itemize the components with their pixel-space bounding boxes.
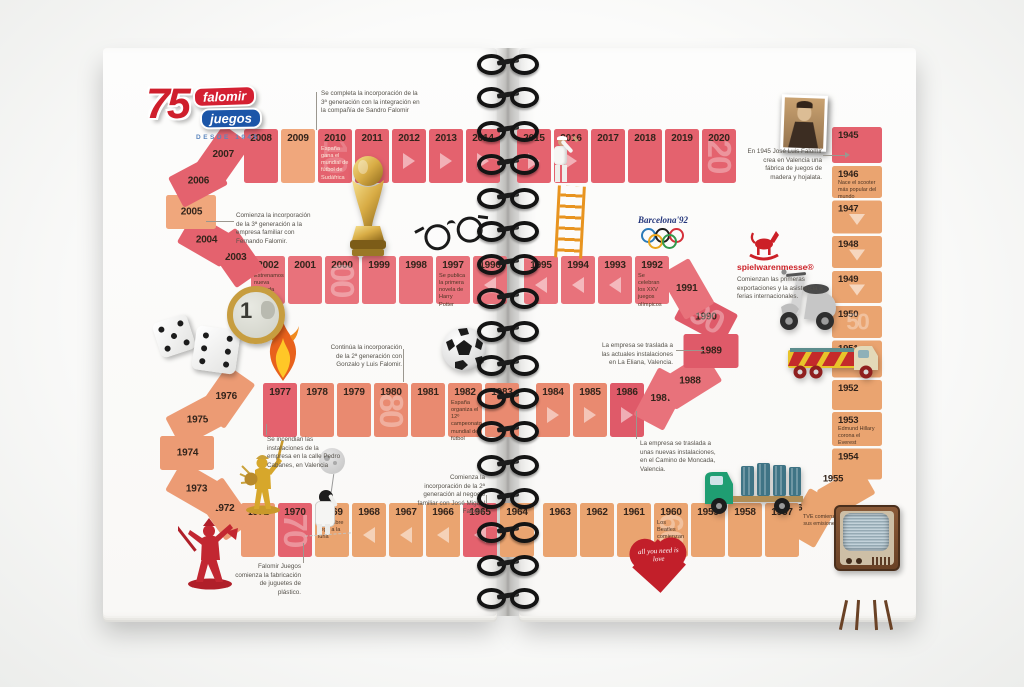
spiral-ring — [474, 419, 542, 437]
annotation-leader-line — [676, 350, 704, 351]
portrait-sepia — [783, 97, 825, 148]
ladder-icon — [554, 185, 586, 258]
decade-watermark: 00 — [323, 264, 361, 297]
year-label: 1993 — [598, 260, 632, 271]
heart-lettering: all you need is love — [633, 547, 684, 565]
year-cell-1998: 1998 — [399, 256, 433, 304]
year-label: 1946 — [832, 169, 882, 180]
direction-arrow-icon — [609, 277, 621, 293]
logo-brand: falomir — [193, 85, 257, 108]
cell-event-note: Edmund Hillary corona el Everest — [838, 426, 879, 447]
year-label: 1962 — [580, 507, 614, 518]
annotation-a2009: Se completa la incorporación de la 3ª ge… — [321, 90, 421, 116]
painter-leg — [562, 165, 567, 182]
annotation-leader-line — [266, 424, 267, 435]
cell-event-note: Nace el scooter más popular del mundo — [838, 180, 879, 201]
annotation-leader-arrowhead — [845, 152, 850, 158]
olympic-rings-icon — [641, 228, 687, 250]
direction-arrow-icon — [437, 527, 449, 543]
year-label: 1985 — [573, 387, 607, 398]
spiral-ring — [474, 219, 542, 237]
beatles-love-heart-icon: all you need is love — [629, 535, 690, 594]
year-label: 1961 — [617, 507, 651, 518]
direction-arrow-icon — [403, 153, 415, 169]
direction-arrow-icon — [572, 277, 584, 293]
spiral-binding — [474, 52, 542, 614]
year-label: 2019 — [665, 133, 699, 144]
spiral-ring — [474, 353, 542, 371]
olympic-ring — [662, 234, 677, 249]
year-label: 1997 — [436, 260, 470, 271]
year-cell-1985: 1985 — [573, 383, 607, 437]
year-cell-1980: 801980 — [374, 383, 408, 437]
logo-tagline: DESDE 1945 — [196, 134, 260, 141]
year-label: 2013 — [429, 133, 463, 144]
portrait-hair — [797, 101, 813, 109]
annotation-a1970: Falomir Juegos comienza la fabricación d… — [235, 563, 301, 597]
year-label: 1981 — [411, 387, 445, 398]
year-label: 2012 — [392, 133, 426, 144]
year-cell-2012: 2012 — [392, 129, 426, 183]
annotation-leader-line — [303, 543, 304, 563]
spiral-ring — [474, 186, 542, 204]
year-label: 2005 — [170, 207, 214, 218]
spiral-ring — [474, 453, 542, 471]
annotation-a1989: La empresa se traslada a las actuales in… — [595, 342, 673, 368]
cell-event-note: Se celebran los XXV juegos olímpicos — [638, 273, 667, 309]
year-cell-2001: 2001 — [288, 256, 322, 304]
year-label: 2001 — [288, 260, 322, 271]
spiral-ring — [474, 252, 542, 270]
year-label: 2004 — [185, 234, 229, 245]
decade-watermark: 50 — [846, 309, 868, 336]
direction-arrow-icon — [849, 249, 865, 260]
euro-coin-icon: 1 — [227, 286, 285, 344]
year-cell-1993: 1993 — [598, 256, 632, 304]
spiral-ring — [474, 586, 542, 604]
year-label: 1991 — [665, 283, 709, 294]
logo-sub-brand: juegos — [200, 107, 262, 129]
falomir-logo: 75 falomir juegos DESDE 1945 — [146, 82, 266, 144]
year-label: 1974 — [166, 448, 210, 459]
year-label: 1945 — [832, 130, 882, 141]
balloon-string — [331, 474, 335, 492]
rocking-horse-icon — [746, 224, 782, 262]
painter-leg — [555, 165, 560, 182]
cell-event-note: Se publica la primera novela de Harry Po… — [439, 273, 468, 309]
year-label: 2011 — [355, 133, 389, 144]
year-cell-1992: 1992Se celebran los XXV juegos olímpicos — [635, 256, 669, 304]
annotation-a1986: La empresa se traslada a unas nuevas ins… — [640, 440, 724, 474]
year-cell-1979: 1979 — [337, 383, 371, 437]
decade-watermark: 80 — [372, 394, 410, 427]
year-cell-1953: 1953Edmund Hillary corona el Everest — [832, 412, 882, 446]
toy-truck-icon — [786, 340, 882, 384]
year-label: 2007 — [201, 149, 245, 160]
year-label: 1976 — [204, 391, 248, 402]
year-label: 1952 — [832, 383, 882, 394]
logo-75-number: 75 — [146, 80, 188, 129]
vintage-tv-icon — [834, 505, 898, 600]
direction-arrow-icon — [621, 407, 633, 423]
direction-arrow-icon — [400, 527, 412, 543]
direction-arrow-icon — [849, 214, 865, 225]
year-cell-1962: 1962 — [580, 503, 614, 557]
year-label: 2009 — [281, 133, 315, 144]
year-label: 1992 — [635, 260, 669, 271]
spiral-ring — [474, 319, 542, 337]
spiral-ring — [474, 152, 542, 170]
direction-arrow-icon — [584, 407, 596, 423]
spiral-ring — [474, 486, 542, 504]
year-cell-2017: 2017 — [591, 129, 625, 183]
annotation-a1945: En 1945 José Luis Falomir crea en Valenc… — [747, 148, 822, 182]
direction-arrow-icon — [849, 284, 865, 295]
year-label: 1989 — [690, 346, 734, 357]
spiral-ring — [474, 553, 542, 571]
spiral-ring — [474, 386, 542, 404]
portrait-suit — [788, 121, 819, 148]
year-label: 2017 — [591, 133, 625, 144]
year-cell-2013: 2013 — [429, 129, 463, 183]
spiral-ring — [474, 85, 542, 103]
notebook-photo: 19451946Nace el scooter más popular del … — [0, 0, 1024, 687]
painter-body — [554, 146, 567, 165]
die — [151, 313, 196, 358]
year-cell-1963: 1963 — [543, 503, 577, 557]
annotation-leader-line — [403, 349, 404, 382]
tv-knob — [846, 558, 852, 564]
tv-knob — [856, 558, 862, 564]
year-label: 1955 — [817, 473, 867, 484]
year-cell-1978: 1978 — [300, 383, 334, 437]
direction-arrow-icon — [440, 153, 452, 169]
year-cell-1945: 1945 — [832, 127, 882, 163]
year-label: 1979 — [337, 387, 371, 398]
olympic-ring — [648, 234, 663, 249]
spiral-ring — [474, 520, 542, 538]
tv-screen — [843, 513, 889, 551]
year-label: 1963 — [543, 507, 577, 518]
year-label: 2018 — [628, 133, 662, 144]
barcelona-92-label: Barcelona'92 — [630, 215, 696, 225]
tv-body — [834, 505, 900, 571]
astronaut-leg — [317, 524, 322, 535]
year-label: 1978 — [300, 387, 334, 398]
world-cup-trophy-icon — [343, 152, 393, 264]
year-label: 1973 — [175, 483, 219, 494]
euro-one-digit: 1 — [240, 298, 252, 324]
year-label: 1977 — [263, 387, 297, 398]
year-label: 1953 — [832, 415, 882, 426]
direction-arrow-icon — [363, 527, 375, 543]
spiral-ring — [474, 286, 542, 304]
year-cell-1997: 1997Se publica la primera novela de Harr… — [436, 256, 470, 304]
spielwarenmesse-label: spielwarenmesse® — [737, 262, 837, 272]
year-cell-1994: 1994 — [561, 256, 595, 304]
year-cell-1952: 1952 — [832, 380, 882, 410]
year-cell-2018: 2018 — [628, 129, 662, 183]
decade-watermark: 20 — [700, 140, 738, 173]
direction-arrow-icon — [547, 407, 559, 423]
ground-sketch — [305, 532, 351, 540]
euro-map-shape — [261, 301, 275, 319]
year-cell-2019: 2019 — [665, 129, 699, 183]
year-cell-1946: 1946Nace el scooter más popular del mund… — [832, 166, 882, 198]
spiral-ring — [474, 119, 542, 137]
annotation-a1977: Se incendian las instalaciones de la emp… — [267, 436, 341, 470]
tv-grill — [872, 557, 890, 565]
annotation-a2005: Comienza la incorporación de la 3ª gener… — [236, 212, 316, 246]
annotation-leader-line — [823, 155, 845, 156]
founder-portrait-photo — [780, 94, 828, 152]
spielwarenmesse-note: Comienzan las primeras exportaciones y l… — [737, 276, 834, 302]
year-label: 1988 — [668, 375, 712, 386]
year-cell-1977: 1977 — [263, 383, 297, 437]
year-cell-2009: 2009 — [281, 129, 315, 183]
spiral-ring — [474, 52, 542, 70]
glasses-bridge — [446, 220, 456, 231]
annotation-leader-line — [316, 92, 317, 130]
year-label: 1947 — [832, 204, 882, 215]
annotation-leader-line — [636, 411, 637, 439]
annotation-leader-line — [206, 221, 234, 222]
year-cell-2020: 202020 — [702, 129, 736, 183]
year-cell-1981: 1981 — [411, 383, 445, 437]
year-label: 1994 — [561, 260, 595, 271]
year-label: 1954 — [832, 452, 882, 463]
annotation-a1980: Continúa la incorporación de la 2ª gener… — [330, 344, 402, 370]
year-cell-1947: 1947 — [832, 201, 882, 234]
year-label: 1998 — [399, 260, 433, 271]
